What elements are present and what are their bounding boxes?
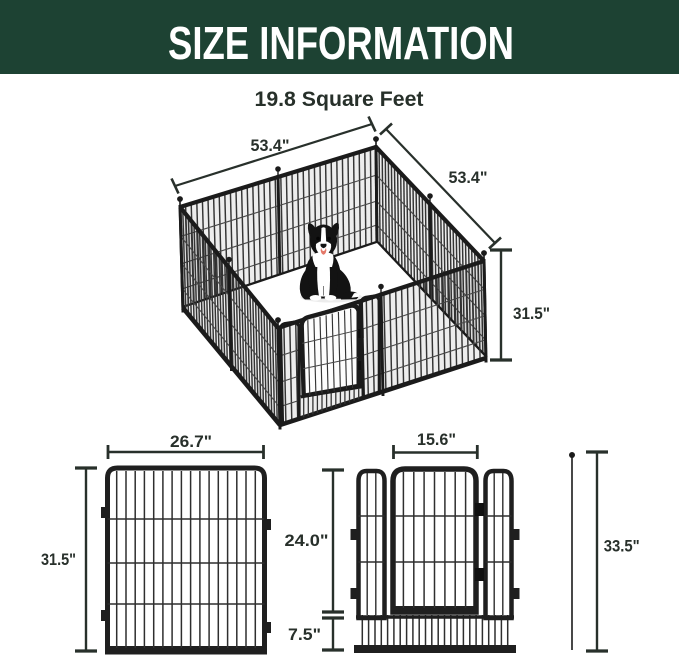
svg-text:15.6": 15.6" bbox=[417, 430, 456, 449]
svg-text:19.8 Square Feet: 19.8 Square Feet bbox=[255, 88, 424, 111]
svg-text:26.7": 26.7" bbox=[170, 432, 212, 451]
svg-text:SIZE INFORMATION: SIZE INFORMATION bbox=[168, 17, 514, 69]
svg-text:24.0": 24.0" bbox=[285, 531, 329, 550]
svg-text:7.5": 7.5" bbox=[288, 625, 321, 644]
svg-text:53.4": 53.4" bbox=[449, 168, 488, 187]
svg-text:31.5": 31.5" bbox=[513, 304, 550, 323]
svg-text:33.5": 33.5" bbox=[604, 537, 640, 556]
svg-text:31.5": 31.5" bbox=[41, 550, 76, 569]
svg-text:53.4": 53.4" bbox=[251, 136, 290, 155]
